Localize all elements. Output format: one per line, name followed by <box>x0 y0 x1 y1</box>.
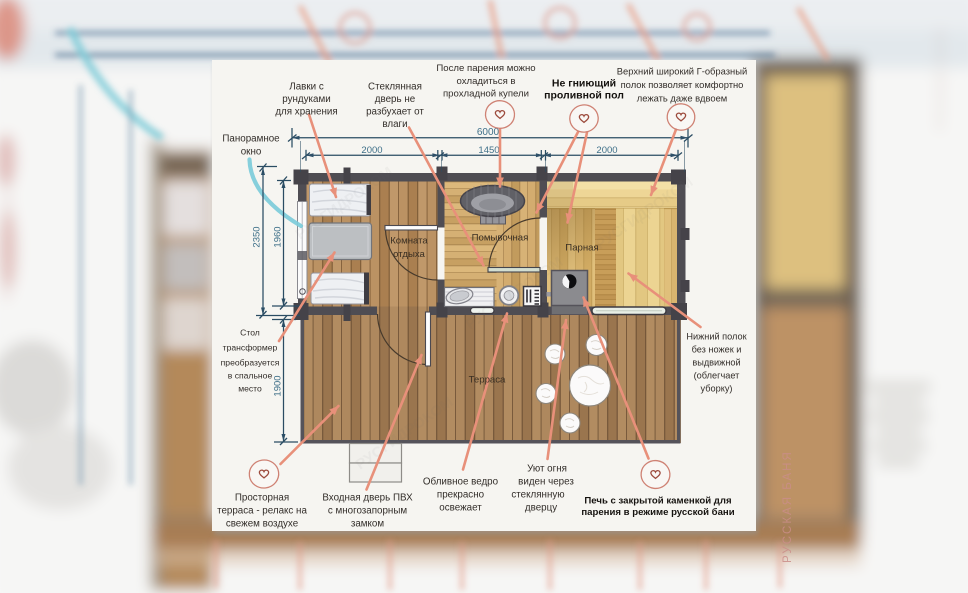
svg-text:Уют огня: Уют огня <box>527 464 567 475</box>
svg-text:преобразуется: преобразуется <box>221 358 280 368</box>
svg-text:Стеклянная: Стеклянная <box>368 82 422 93</box>
svg-text:свежем воздухе: свежем воздухе <box>226 519 299 530</box>
svg-text:без ножек и: без ножек и <box>692 345 742 355</box>
svg-text:с многозапорным: с многозапорным <box>328 506 408 517</box>
svg-text:Панорамное: Панорамное <box>222 134 280 145</box>
svg-text:парения в режиме русской бани: парения в режиме русской бани <box>581 507 734 518</box>
svg-text:Комната: Комната <box>390 236 428 247</box>
svg-text:РУССКАЯ БАНЯ: РУССКАЯ БАНЯ <box>782 450 794 563</box>
svg-text:отдыха: отдыха <box>393 249 425 260</box>
svg-text:уборку): уборку) <box>701 384 733 394</box>
svg-text:Помывочная: Помывочная <box>472 233 529 244</box>
svg-text:выдвижной: выдвижной <box>692 358 740 368</box>
svg-text:Просторная: Просторная <box>235 493 289 504</box>
svg-text:Верхний широкий Г-образный: Верхний широкий Г-образный <box>617 66 747 77</box>
svg-text:лежать даже вдвоем: лежать даже вдвоем <box>637 93 728 104</box>
svg-text:проливной пол: проливной пол <box>544 90 624 102</box>
svg-text:терраса - релакс на: терраса - релакс на <box>217 506 307 517</box>
svg-text:охладиться в: охладиться в <box>456 76 515 87</box>
svg-text:прохладной купели: прохладной купели <box>443 89 529 100</box>
svg-text:2350: 2350 <box>252 226 263 247</box>
svg-text:дверь не: дверь не <box>375 94 416 105</box>
svg-text:окно: окно <box>241 147 262 158</box>
svg-text:Стол: Стол <box>240 328 260 338</box>
svg-text:в спальное: в спальное <box>228 371 273 381</box>
svg-text:1450: 1450 <box>478 145 499 156</box>
svg-text:дверцу: дверцу <box>525 503 557 514</box>
svg-text:рундуками: рундуками <box>282 94 330 105</box>
svg-text:Терраса: Терраса <box>469 375 506 386</box>
svg-text:Печь с закрытой каменкой для: Печь с закрытой каменкой для <box>584 496 731 507</box>
svg-text:виден через: виден через <box>518 477 574 488</box>
svg-text:влаги: влаги <box>382 119 407 130</box>
svg-text:для хранения: для хранения <box>275 107 337 118</box>
svg-text:РУССКАЯ БАНЯ: РУССКАЯ БАНЯ <box>935 27 947 130</box>
svg-text:стеклянную: стеклянную <box>511 490 564 501</box>
svg-text:(облегчает: (облегчает <box>694 371 741 381</box>
svg-text:2000: 2000 <box>361 145 382 156</box>
svg-text:место: место <box>238 384 262 394</box>
svg-text:1900: 1900 <box>273 375 284 396</box>
svg-text:прекрасно: прекрасно <box>437 490 485 501</box>
svg-text:разбухает от: разбухает от <box>366 107 424 118</box>
svg-text:Лавки с: Лавки с <box>289 82 324 93</box>
svg-text:освежает: освежает <box>439 503 482 514</box>
svg-text:После парения можно: После парения можно <box>436 63 535 74</box>
svg-text:Парная: Парная <box>565 243 598 254</box>
svg-text:Входная дверь ПВХ: Входная дверь ПВХ <box>322 493 413 504</box>
svg-text:трансформер: трансформер <box>223 343 278 353</box>
svg-text:1960: 1960 <box>273 226 284 247</box>
svg-text:полок позволяет комфортно: полок позволяет комфортно <box>621 79 744 90</box>
svg-text:РУССКАЯ БАНЯ: РУССКАЯ БАНЯ <box>0 176 15 300</box>
svg-text:замком: замком <box>351 519 385 530</box>
svg-text:Не гниющий: Не гниющий <box>552 78 616 90</box>
svg-text:2000: 2000 <box>596 145 617 156</box>
svg-text:Нижний полок: Нижний полок <box>686 332 747 342</box>
svg-text:Обливное ведро: Обливное ведро <box>423 477 499 488</box>
